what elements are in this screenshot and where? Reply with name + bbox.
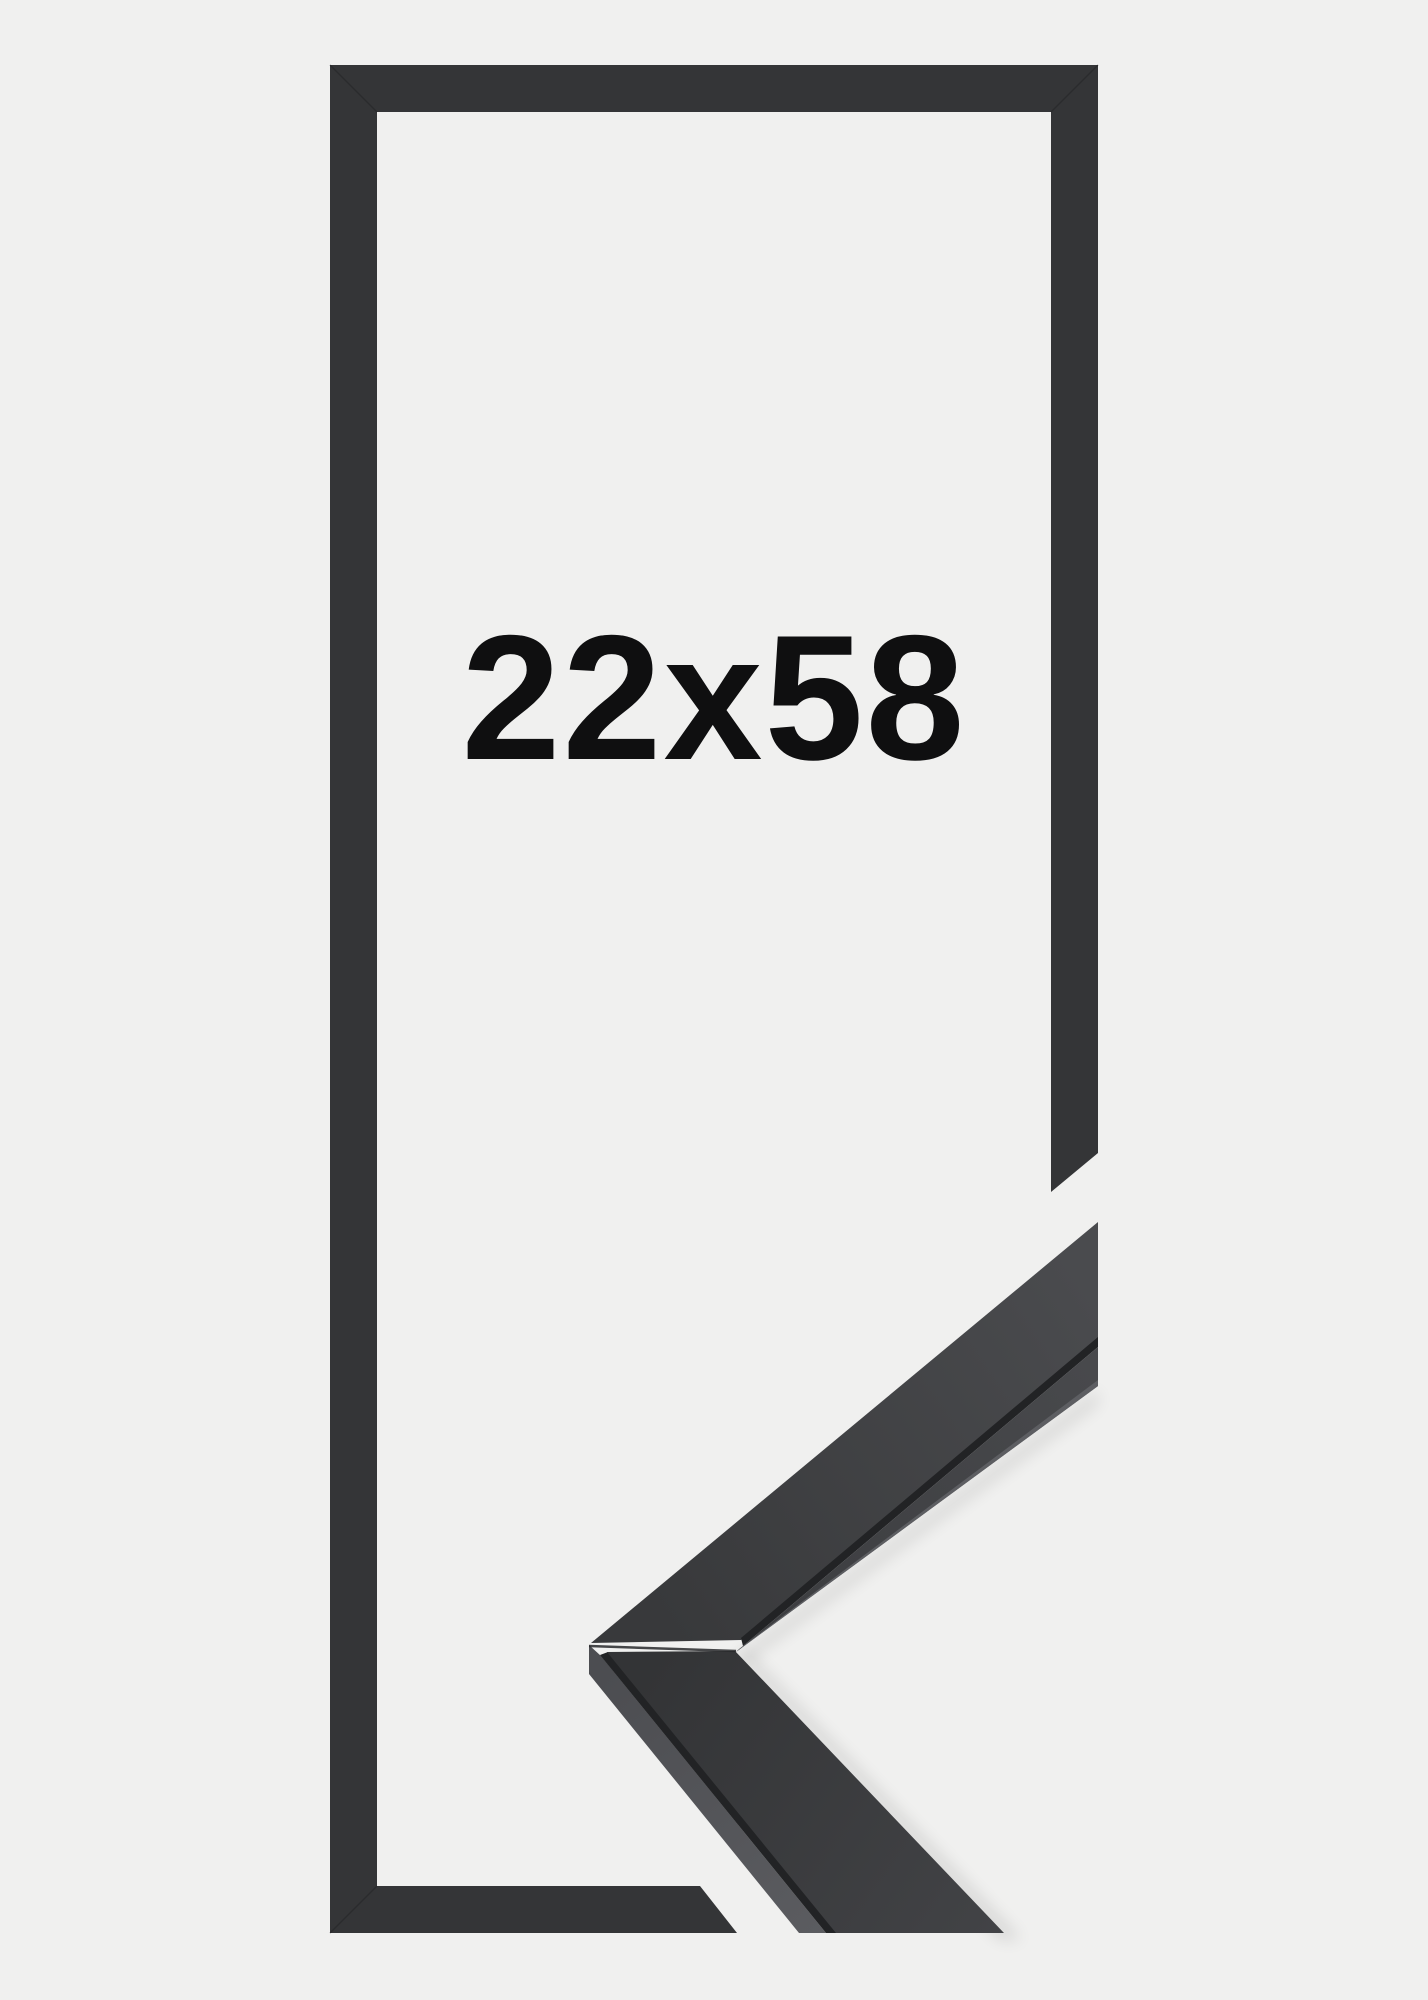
frame-bottom-bar	[330, 1886, 737, 1933]
frame-graphic	[0, 0, 1428, 2000]
frame-top-bar	[330, 65, 1098, 112]
size-label: 22x58	[330, 568, 1098, 828]
frame-product-image: 22x58	[0, 0, 1428, 2000]
frame-left-bar	[330, 65, 377, 1933]
